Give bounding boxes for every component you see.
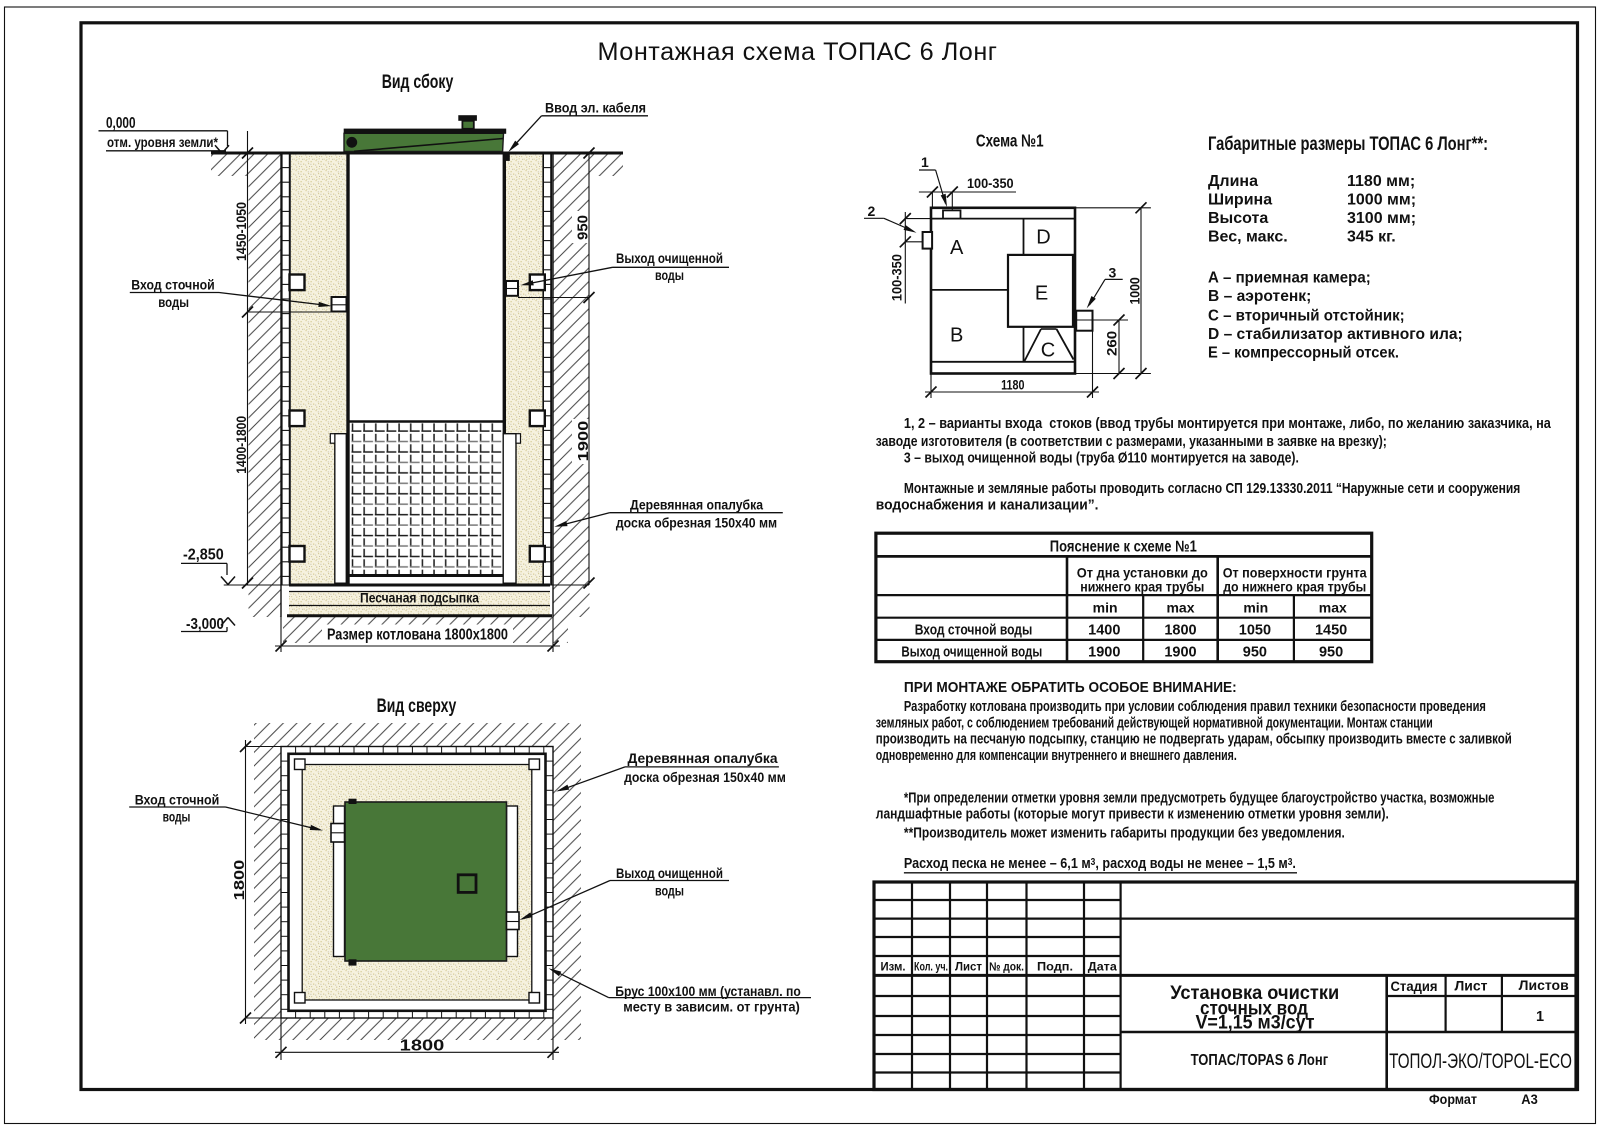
svg-text:В – аэротенк;: В – аэротенк; [1208, 288, 1311, 305]
svg-text:*При определении отметки уровн: *При определении отметки уровня земли пр… [904, 789, 1495, 806]
svg-text:Подп.: Подп. [1037, 960, 1073, 974]
svg-text:месту в зависим. от грунта): месту в зависим. от грунта) [623, 999, 800, 1015]
svg-text:Лист: Лист [1455, 979, 1488, 994]
svg-text:Деревянная опалубка: Деревянная опалубка [630, 497, 763, 513]
svg-text:B: B [950, 325, 963, 347]
svg-text:Длина: Длина [1208, 173, 1258, 190]
svg-text:Вход сточной: Вход сточной [131, 277, 215, 293]
svg-text:1050: 1050 [1239, 623, 1271, 639]
svg-text:-3,000: -3,000 [186, 616, 224, 633]
svg-text:Габаритные размеры ТОПАС 6 Лон: Габаритные размеры ТОПАС 6 Лонг**: [1208, 134, 1488, 155]
svg-text:Вес, макс.: Вес, макс. [1208, 228, 1288, 245]
svg-text:max: max [1166, 600, 1194, 616]
svg-text:C: C [1041, 340, 1055, 362]
svg-text:2: 2 [868, 203, 876, 219]
svg-text:V=1,15 м3/сут: V=1,15 м3/сут [1196, 1012, 1315, 1034]
svg-text:1400: 1400 [1088, 623, 1120, 639]
svg-text:Брус 100х100 мм (устанавл. по: Брус 100х100 мм (устанавл. по [615, 983, 801, 999]
svg-text:Лист: Лист [955, 960, 982, 974]
svg-text:1800: 1800 [400, 1038, 445, 1055]
svg-text:3100 мм;: 3100 мм; [1347, 210, 1416, 227]
svg-text:1000: 1000 [1128, 277, 1143, 304]
svg-text:3 – выход очищенной воды (труб: 3 – выход очищенной воды (труба Ø110 мон… [904, 450, 1299, 467]
svg-text:100-350: 100-350 [967, 176, 1014, 191]
svg-text:Разработку котлована производи: Разработку котлована производить при усл… [904, 698, 1486, 715]
svg-text:950: 950 [1243, 645, 1267, 661]
svg-text:1180: 1180 [1001, 378, 1024, 393]
svg-text:А3: А3 [1521, 1091, 1538, 1107]
svg-text:Песчаная подсыпка: Песчаная подсыпка [360, 591, 479, 606]
svg-text:Пояснение к схеме №1: Пояснение к схеме №1 [1050, 539, 1197, 556]
svg-text:3: 3 [1109, 265, 1117, 281]
svg-text:1900: 1900 [1088, 645, 1120, 661]
svg-text:Стадия: Стадия [1391, 979, 1438, 994]
svg-text:ПРИ МОНТАЖЕ ОБРАТИТЬ ОСОБОЕ ВН: ПРИ МОНТАЖЕ ОБРАТИТЬ ОСОБОЕ ВНИМАНИЕ: [904, 679, 1237, 696]
svg-text:Выход очищенной воды: Выход очищенной воды [901, 645, 1042, 661]
svg-text:Кол. уч.: Кол. уч. [914, 960, 948, 974]
svg-text:100-350: 100-350 [890, 254, 905, 301]
svg-text:1: 1 [921, 154, 929, 170]
svg-text:нижнего края трубы: нижнего края трубы [1080, 579, 1204, 595]
svg-text:воды: воды [163, 809, 191, 825]
svg-text:Листов: Листов [1519, 978, 1569, 993]
svg-text:производить на песчаную подсып: производить на песчаную подсыпку, станци… [876, 731, 1512, 748]
svg-text:min: min [1093, 600, 1118, 616]
svg-text:отм. уровня земли*: отм. уровня земли* [107, 135, 219, 150]
svg-text:заводе изготовителя (в соответ: заводе изготовителя (в соответствии с ра… [876, 433, 1387, 450]
svg-text:1, 2 – варианты входа стоков: 1, 2 – варианты входа стоков (ввод трубы… [904, 415, 1552, 432]
svg-text:Высота: Высота [1208, 210, 1268, 227]
svg-text:950: 950 [575, 215, 592, 240]
svg-text:воды: воды [158, 294, 189, 310]
svg-text:260: 260 [1105, 331, 1120, 356]
svg-text:1180 мм;: 1180 мм; [1347, 173, 1415, 190]
svg-text:А – приемная камера;: А – приемная камера; [1208, 269, 1371, 286]
svg-text:1800: 1800 [1164, 623, 1196, 639]
svg-text:1400-1800: 1400-1800 [233, 416, 249, 474]
svg-text:№ док.: № док. [989, 960, 1024, 974]
svg-text:min: min [1243, 600, 1268, 616]
svg-text:воды: воды [655, 267, 684, 283]
svg-text:Вид сбоку: Вид сбоку [382, 72, 454, 93]
svg-text:Дата: Дата [1088, 960, 1117, 974]
svg-text:1900: 1900 [575, 421, 592, 462]
svg-text:**Производитель может изменить: **Производитель может изменить габариты … [904, 824, 1345, 841]
svg-text:Вход сточной воды: Вход сточной воды [915, 623, 1033, 639]
svg-text:1450: 1450 [1315, 623, 1347, 639]
svg-text:ТОПАС/TOPAS 6 Лонг: ТОПАС/TOPAS 6 Лонг [1191, 1052, 1329, 1069]
svg-text:ландшафтные работы (которые мо: ландшафтные работы (которые могут привес… [876, 806, 1389, 823]
svg-text:доска обрезная 150х40 мм: доска обрезная 150х40 мм [624, 769, 786, 785]
svg-text:1800: 1800 [231, 860, 248, 901]
svg-text:Монтажные и земляные работы пр: Монтажные и земляные работы проводить со… [904, 480, 1520, 497]
svg-text:Расход песка не менее – 6,1 м3: Расход песка не менее – 6,1 м3, расход в… [904, 855, 1296, 872]
svg-text:Ширина: Ширина [1208, 192, 1272, 209]
svg-text:1: 1 [1536, 1009, 1544, 1025]
svg-text:земляных работ, с соблюдением: земляных работ, с соблюдением требований… [876, 714, 1433, 731]
svg-text:С – вторичный отстойник;: С – вторичный отстойник; [1208, 308, 1405, 325]
svg-text:Е – компрессорный отсек.: Е – компрессорный отсек. [1208, 344, 1399, 361]
svg-text:водоснабжения и канализации”.: водоснабжения и канализации”. [876, 496, 1099, 513]
svg-text:D: D [1036, 227, 1050, 249]
svg-text:Формат: Формат [1429, 1091, 1477, 1107]
svg-text:Ввод эл. кабеля: Ввод эл. кабеля [545, 100, 646, 116]
svg-text:Вход сточной: Вход сточной [135, 792, 220, 808]
svg-text:Деревянная опалубка: Деревянная опалубка [628, 750, 778, 766]
svg-text:D – стабилизатор активного ила: D – стабилизатор активного ила; [1208, 326, 1463, 343]
svg-text:Схема №1: Схема №1 [976, 131, 1044, 151]
svg-text:Размер котлована 1800х1800: Размер котлована 1800х1800 [327, 627, 508, 644]
svg-text:1450-1050: 1450-1050 [233, 202, 249, 261]
svg-text:воды: воды [655, 883, 684, 899]
svg-text:Монтажная схема ТОПАС 6 Лонг: Монтажная схема ТОПАС 6 Лонг [598, 38, 998, 66]
svg-text:ТОПОЛ-ЭКО/TOPOL-ECO: ТОПОЛ-ЭКО/TOPOL-ECO [1389, 1050, 1572, 1073]
svg-text:Выход очищенной: Выход очищенной [616, 250, 723, 266]
svg-text:1900: 1900 [1164, 645, 1196, 661]
svg-text:до нижнего края трубы: до нижнего края трубы [1223, 579, 1366, 595]
svg-text:1000 мм;: 1000 мм; [1347, 192, 1416, 209]
svg-text:Выход очищенной: Выход очищенной [616, 865, 723, 881]
svg-text:одновременно для компенсации в: одновременно для компенсации внутреннего… [876, 747, 1237, 764]
svg-text:max: max [1319, 600, 1347, 616]
svg-text:0,000: 0,000 [106, 115, 136, 132]
svg-text:E: E [1035, 283, 1048, 305]
svg-text:Вид сверху: Вид сверху [377, 696, 457, 717]
svg-text:950: 950 [1319, 645, 1343, 661]
svg-text:доска обрезная 150х40 мм: доска обрезная 150х40 мм [616, 514, 777, 530]
svg-text:345 кг.: 345 кг. [1347, 228, 1396, 245]
svg-text:Изм.: Изм. [881, 960, 906, 974]
svg-text:-2,850: -2,850 [183, 547, 224, 564]
svg-text:A: A [950, 237, 964, 259]
